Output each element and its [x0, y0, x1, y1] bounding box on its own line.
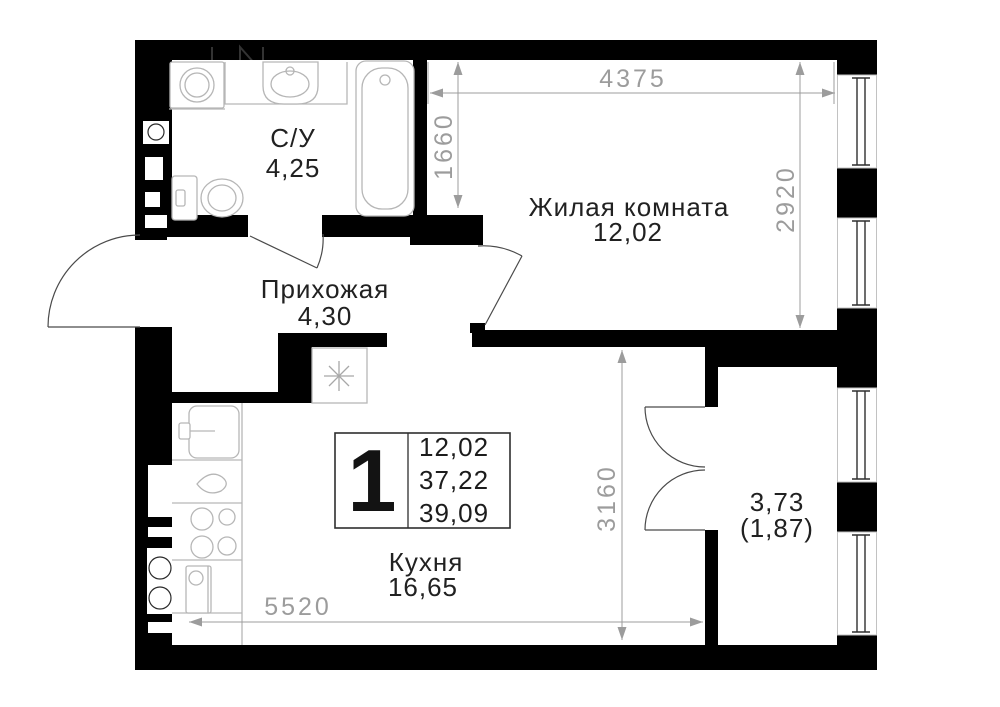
dim-label-5520: 5520 — [264, 593, 332, 621]
unit-apartment-area: 37,22 — [419, 465, 489, 495]
unit-total-area: 39,09 — [419, 498, 489, 528]
kitchen-fixtures — [172, 403, 242, 645]
bathtub-icon — [356, 61, 414, 216]
walls-layer — [135, 40, 877, 670]
dimension-living-depth: 2920 — [772, 62, 805, 328]
bathroom-door — [250, 234, 323, 268]
kitchen-area: 16,65 — [388, 572, 458, 602]
balcony-double-door — [645, 407, 705, 530]
kitchen-sink-icon — [179, 406, 239, 458]
dim-label-4375: 4375 — [599, 65, 667, 93]
balcony-area-reduced: (1,87) — [740, 513, 814, 543]
hallway-area: 4,30 — [298, 301, 353, 331]
living-room-area: 12,02 — [593, 217, 663, 247]
window — [838, 388, 877, 482]
riser-pipe-icon — [148, 124, 164, 140]
floor-plan-page: 4375 1660 2920 3160 5520 С/У — [0, 0, 1000, 707]
hob-icon — [197, 474, 226, 493]
kitchen-appliance-icon — [186, 566, 211, 613]
bathroom-label: С/У — [270, 123, 316, 153]
dim-label-3160: 3160 — [593, 464, 621, 532]
dimension-living-width: 4375 — [428, 62, 835, 104]
window — [838, 218, 877, 308]
washing-machine-icon — [169, 62, 225, 109]
dimension-kitchen-depth: 3160 — [593, 350, 627, 640]
hallway-label: Прихожая — [261, 274, 389, 304]
living-room-door — [478, 246, 522, 325]
riser-pipe-icon — [149, 557, 171, 579]
floor-plan: 4375 1660 2920 3160 5520 С/У — [0, 0, 1000, 707]
window — [838, 75, 877, 168]
riser-pipe-icon — [149, 587, 171, 609]
unit-living-area: 12,02 — [419, 432, 489, 462]
unit-card: 1 12,02 37,22 39,09 — [335, 431, 510, 530]
dimension-entry-side: 1660 — [430, 62, 463, 208]
entrance-door — [48, 235, 140, 327]
dim-label-1660: 1660 — [430, 112, 458, 180]
toilet-icon — [172, 176, 243, 220]
window — [838, 532, 877, 635]
bathroom-area: 4,25 — [266, 153, 321, 183]
vent-box — [312, 348, 367, 403]
unit-rooms-count: 1 — [348, 431, 397, 530]
vent-star-icon — [324, 361, 354, 391]
bathroom-sink-icon — [263, 62, 318, 104]
dim-label-2920: 2920 — [772, 165, 800, 233]
stove-burners-icon — [191, 508, 236, 558]
